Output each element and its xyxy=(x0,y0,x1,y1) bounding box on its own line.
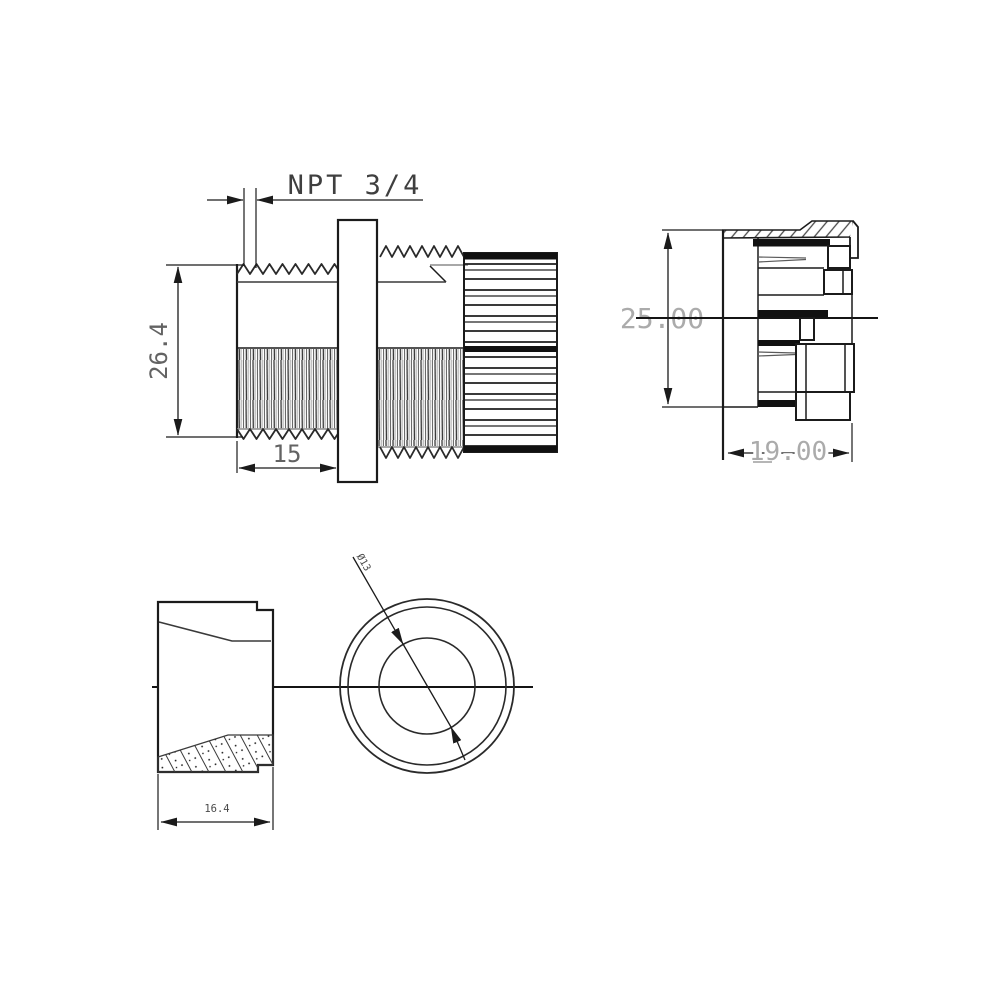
knurl-cap xyxy=(464,253,557,452)
knurl-cap-mid-bar xyxy=(464,346,557,352)
center-tube xyxy=(800,318,814,340)
thread-length-label: 15 xyxy=(273,440,302,468)
thread-spec-label: NPT 3/4 xyxy=(288,170,423,201)
finger-bar xyxy=(753,239,830,247)
knurl-cap-bottom-bar xyxy=(464,446,557,453)
mounting-flange xyxy=(338,220,377,482)
engineering-drawing-svg: NPT 3/4 26.4 15 25.00 xyxy=(0,0,1000,1000)
knurl-cap-body xyxy=(464,253,557,452)
finger-bar xyxy=(758,340,800,346)
locknut-width-label: 16.4 xyxy=(204,803,229,815)
thread-flank-hatch-right xyxy=(378,349,464,446)
knurl-cap-top-bar xyxy=(464,253,557,260)
claw-tip-bottom xyxy=(796,392,850,420)
finger-bar xyxy=(758,310,828,317)
drawing-sheet: NPT 3/4 26.4 15 25.00 xyxy=(0,0,1000,1000)
thread-flank-hatch-left xyxy=(237,349,338,429)
sheet-background xyxy=(0,0,1000,1000)
gland-height-label: 26.4 xyxy=(145,322,173,380)
claw-tip xyxy=(828,246,850,268)
claw-tip xyxy=(824,270,852,294)
